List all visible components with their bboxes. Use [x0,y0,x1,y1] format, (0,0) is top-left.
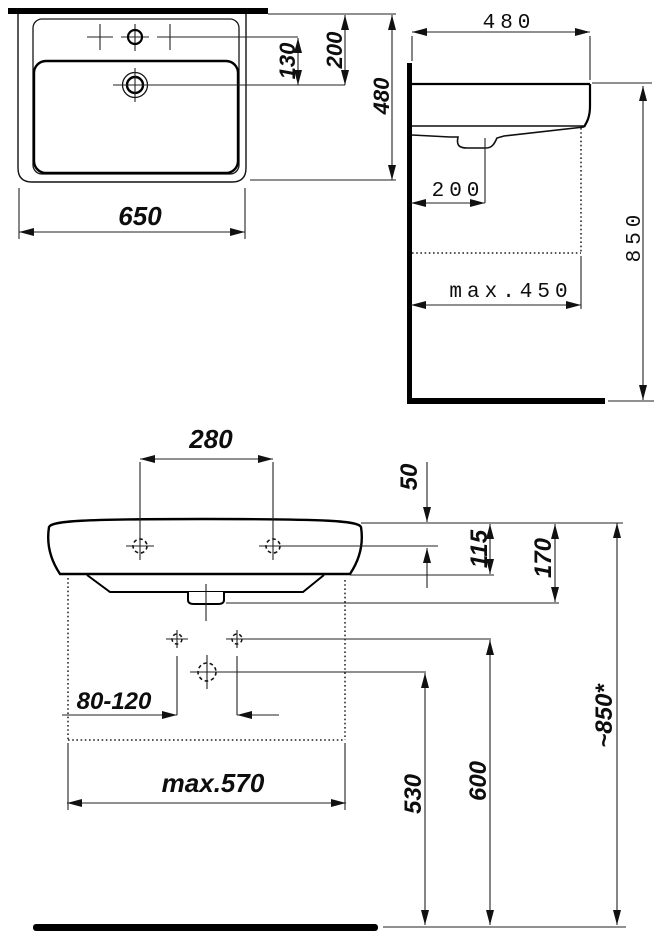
dimension-max570: max.570 [67,743,346,810]
dim-arrowhead [486,910,494,925]
dimension-rim-to-fixing-50: 50 [396,462,427,588]
dim-arrowhead [613,910,621,925]
dim-arrowhead [19,228,34,236]
dimension-max450: max.450 [411,281,581,305]
dim-arrowhead [140,455,155,463]
top-view: 650 130 200 480 [8,8,396,239]
dimension-drain-from-wall-200: 200 [411,180,485,203]
dim-label-650: 650 [118,201,162,231]
dim-arrowhead [162,711,177,719]
dim-label-280: 280 [188,424,233,454]
front-view: 280 50 115 170 80-120 max.570 530 [33,424,626,931]
dimension-tap-spacing-280: 280 [140,424,273,459]
dimension-height-850: 850 [592,83,654,401]
dim-arrowhead [551,524,559,539]
floor-bar [33,924,378,931]
dimension-supply-height-600: 600 [465,640,492,925]
dim-label-200: 200 [322,31,347,69]
dim-arrowhead [331,799,346,807]
back-edge-bar [8,8,268,14]
wall-line [407,63,412,403]
dim-arrowhead [411,199,426,207]
wall-floor-line [407,398,605,404]
dimension-depth-480-side: 480 [412,12,590,80]
dim-label-80-120: 80-120 [77,688,152,715]
dim-arrowhead [67,799,82,807]
dim-arrowhead [486,640,494,655]
dimension-rim-height-850: ~850* [591,523,618,925]
washbasin-dimension-drawing: 650 130 200 480 480 [0,0,658,950]
dim-arrowhead [258,455,273,463]
technical-drawing-page: 650 130 200 480 480 [0,0,658,950]
dim-arrowhead [423,507,431,522]
dim-arrowhead [230,228,245,236]
dim-label-600: 600 [465,760,492,801]
dim-arrowhead [388,15,396,30]
dim-arrowhead [421,910,429,925]
dim-label-480-side: 480 [483,12,536,35]
dim-arrowhead [639,86,647,101]
dim-label-max570: max.570 [162,768,265,798]
dim-arrowhead [412,28,427,36]
dim-arrowhead [411,301,426,309]
dim-arrowhead [388,165,396,180]
dim-arrowhead [341,70,349,85]
dim-arrowhead [421,673,429,688]
dim-arrowhead [575,28,590,36]
dim-label-200-side: 200 [432,180,485,203]
dim-arrowhead [341,15,349,30]
dim-label-850: 850 [624,210,647,263]
dim-arrowhead [551,587,559,602]
dim-label-max450: max.450 [449,281,572,304]
dimension-trap-height-530: 530 [400,673,427,925]
dim-arrowhead [423,548,431,563]
dimension-supply-spacing-80-120: 80-120 [62,688,279,715]
dimension-depth-480: 480 [369,15,394,180]
dim-arrowhead [237,711,252,719]
dimension-width-650: 650 [19,188,245,239]
dim-label-50: 50 [396,463,423,490]
dim-label-480: 480 [369,77,394,115]
dim-label-530: 530 [400,773,427,814]
dim-label-850-front: ~850* [591,683,618,748]
dim-label-170: 170 [530,537,557,578]
side-view: 480 200 max.450 850 [407,12,654,404]
dim-arrowhead [566,301,581,309]
dim-arrowhead [639,385,647,400]
bowl-underside-profile [412,127,584,148]
dim-arrowhead [613,523,621,538]
basin-front-profile [584,84,590,127]
